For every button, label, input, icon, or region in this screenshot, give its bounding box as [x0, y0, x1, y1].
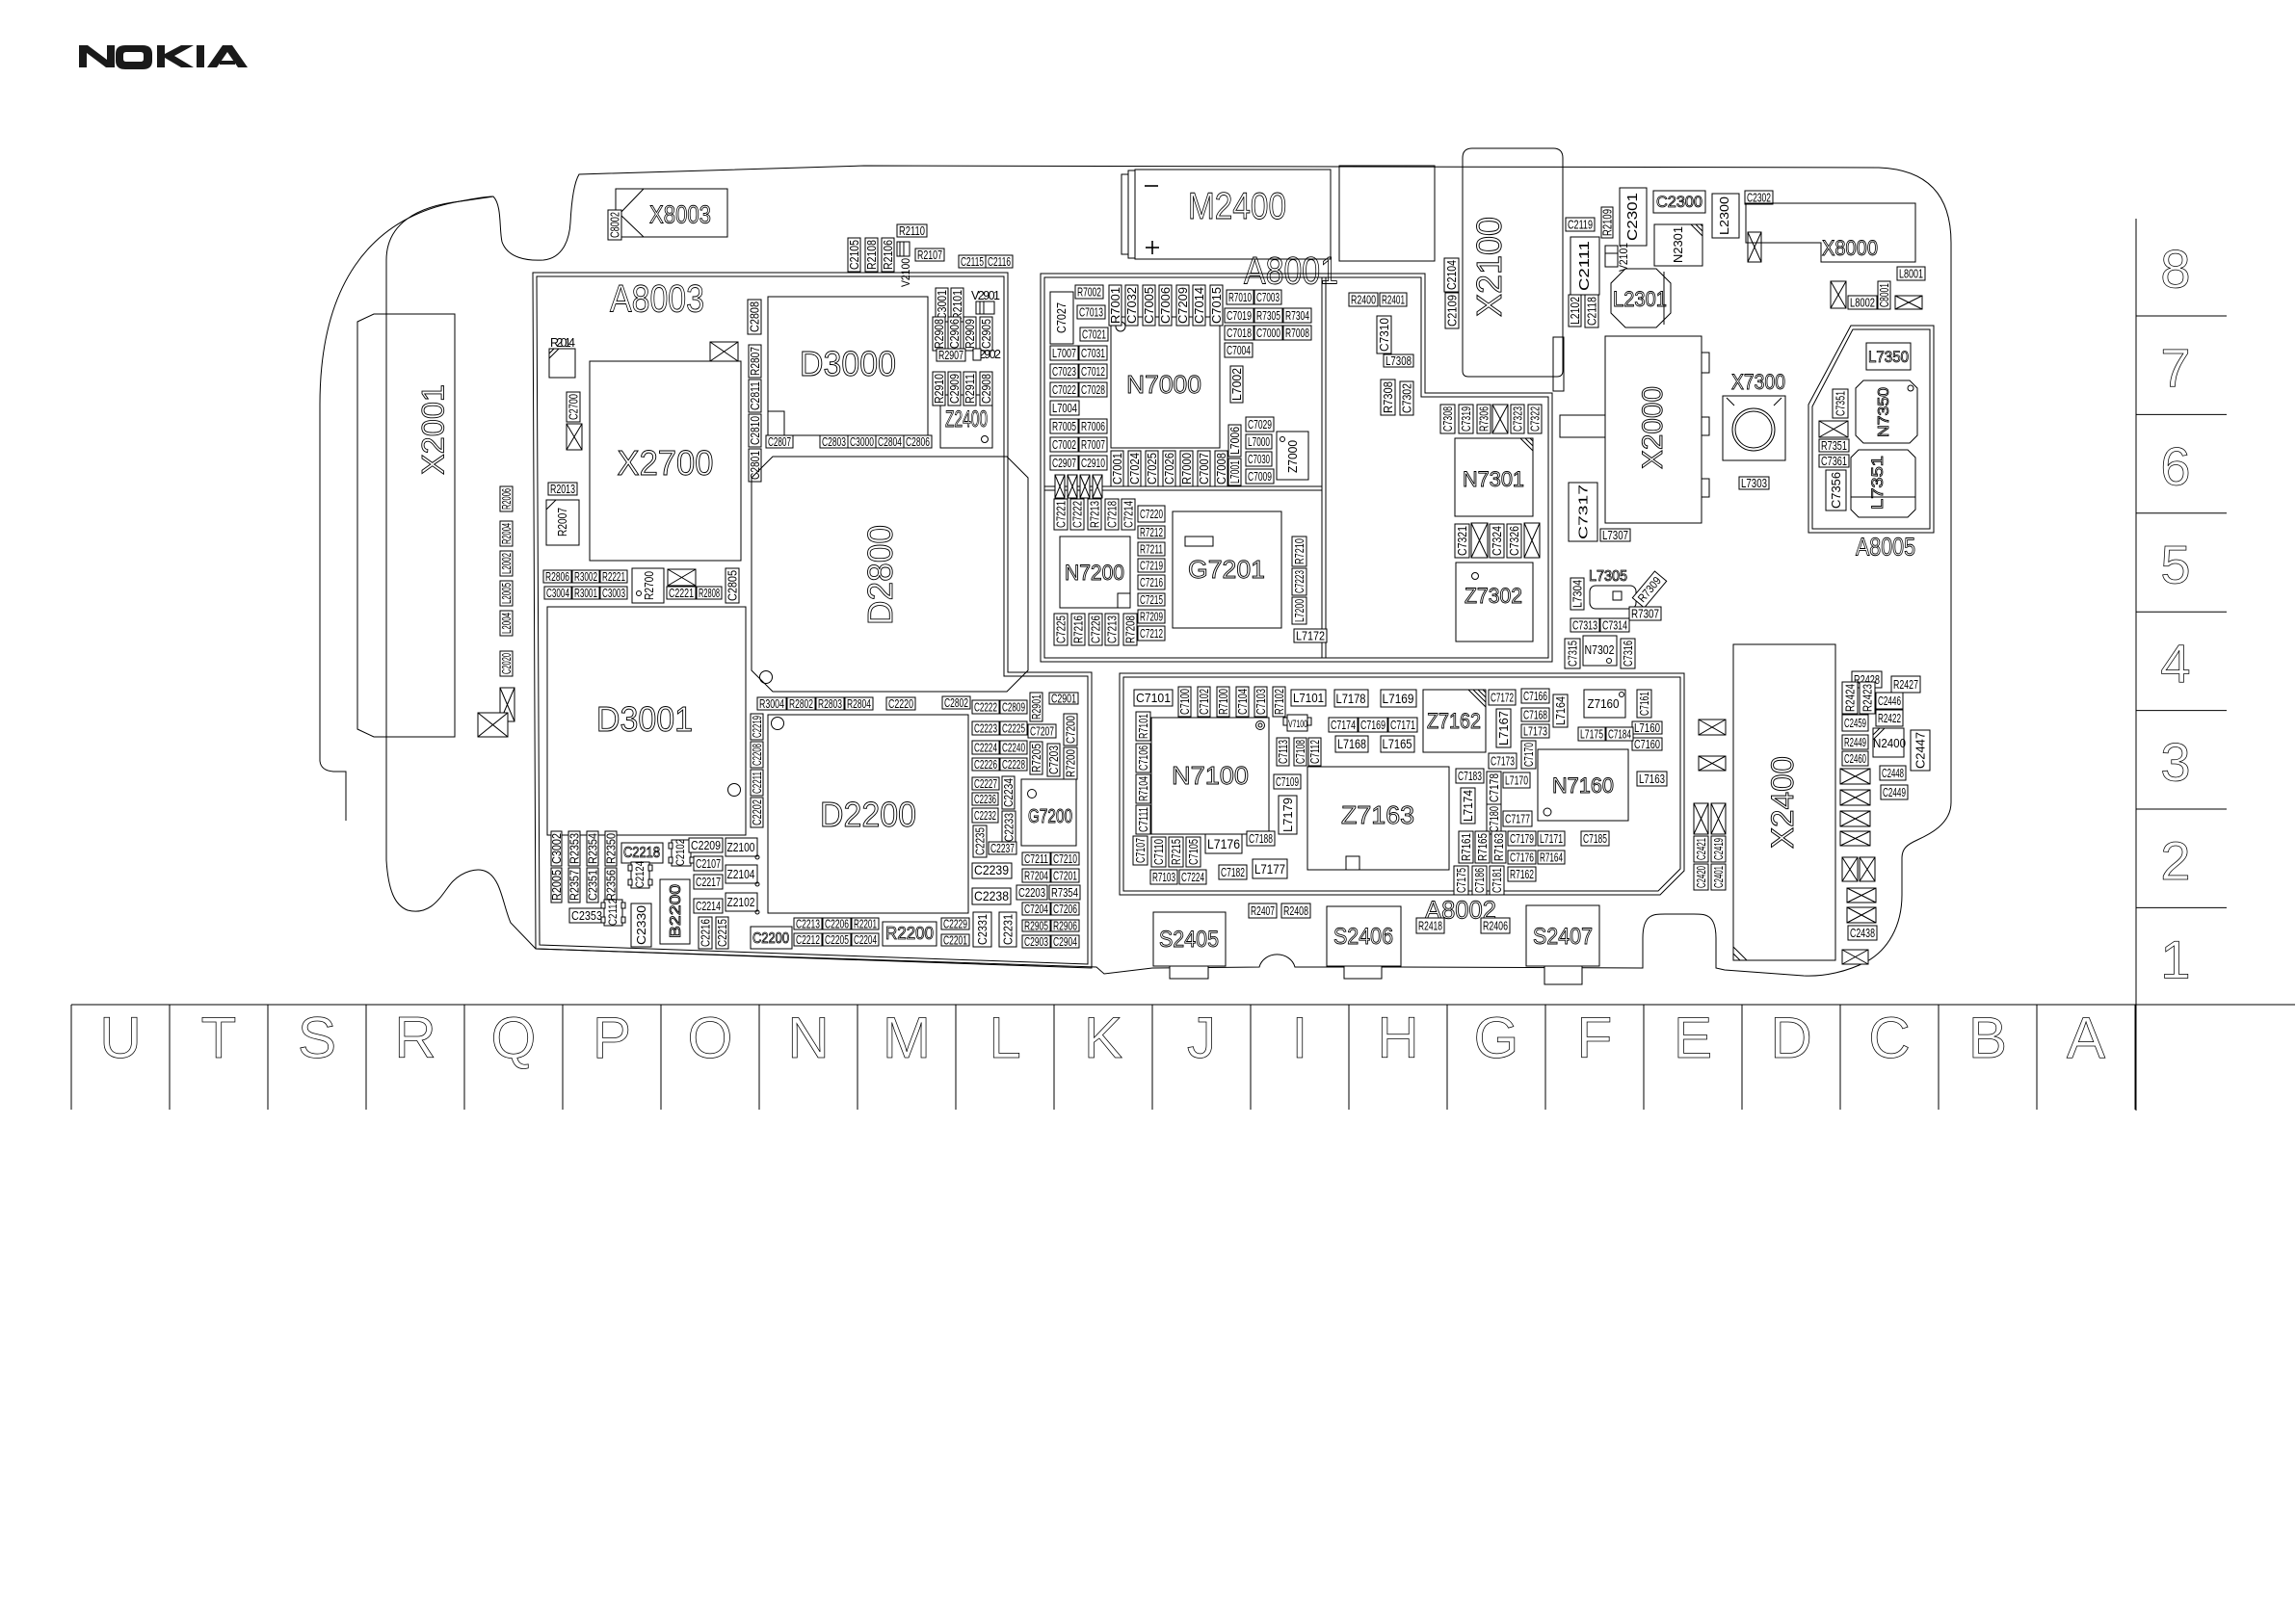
svg-text:L2002: L2002 — [500, 553, 514, 574]
svg-text:N2400: N2400 — [1873, 736, 1906, 750]
svg-text:C7166: C7166 — [1523, 690, 1547, 703]
svg-text:R2014: R2014 — [550, 336, 575, 350]
svg-text:C7314: C7314 — [1602, 618, 1627, 632]
svg-text:R7007: R7007 — [1081, 438, 1105, 452]
svg-text:S2405: S2405 — [1159, 927, 1219, 953]
svg-text:B: B — [1968, 1006, 2007, 1070]
svg-text:L7160: L7160 — [1634, 721, 1660, 735]
svg-text:C2111: C2111 — [1576, 241, 1593, 291]
svg-text:R7164: R7164 — [1540, 851, 1563, 864]
svg-text:C7002: C7002 — [1052, 438, 1076, 452]
svg-text:C2232: C2232 — [974, 809, 996, 823]
svg-text:R3001: R3001 — [574, 587, 597, 600]
svg-text:R7008: R7008 — [1285, 327, 1309, 340]
svg-text:C7215: C7215 — [1140, 593, 1163, 607]
svg-text:R7208: R7208 — [1123, 615, 1137, 643]
svg-text:C7213: C7213 — [1105, 615, 1119, 643]
svg-text:C2109: C2109 — [1445, 295, 1459, 327]
svg-text:C7302: C7302 — [1400, 383, 1413, 413]
svg-text:L7165: L7165 — [1383, 736, 1412, 751]
svg-text:S2407: S2407 — [1533, 924, 1593, 950]
svg-text:C2420: C2420 — [1695, 866, 1708, 888]
svg-text:R2005: R2005 — [550, 870, 564, 901]
svg-text:C7009: C7009 — [1248, 470, 1272, 484]
svg-text:L7172: L7172 — [1296, 629, 1325, 642]
svg-text:C2238: C2238 — [974, 888, 1009, 903]
svg-text:L7178: L7178 — [1336, 691, 1366, 706]
svg-text:C7022: C7022 — [1052, 383, 1076, 397]
svg-text:7: 7 — [2160, 337, 2190, 398]
svg-text:Z7162: Z7162 — [1427, 709, 1481, 733]
svg-text:I: I — [1292, 1006, 1308, 1070]
svg-text:Z7163: Z7163 — [1341, 800, 1414, 829]
svg-text:C2803: C2803 — [822, 435, 846, 449]
svg-text:L7307: L7307 — [1602, 529, 1628, 542]
svg-text:X2001: X2001 — [416, 384, 451, 475]
svg-text:R2357: R2357 — [567, 870, 581, 901]
svg-text:R7215: R7215 — [1170, 839, 1183, 865]
svg-text:R7165: R7165 — [1476, 833, 1490, 861]
svg-text:D2800: D2800 — [860, 525, 900, 625]
svg-text:C2801: C2801 — [749, 451, 762, 480]
svg-text:R2911: R2911 — [963, 374, 977, 404]
svg-text:Z2100: Z2100 — [727, 840, 755, 854]
svg-text:N7000: N7000 — [1126, 370, 1201, 399]
svg-text:C7161: C7161 — [1638, 692, 1651, 716]
svg-text:C2212: C2212 — [796, 933, 820, 947]
svg-text:R2200: R2200 — [885, 924, 934, 943]
svg-text:P: P — [593, 1006, 631, 1070]
svg-text:R7307: R7307 — [1631, 607, 1659, 620]
svg-text:L7101: L7101 — [1293, 691, 1324, 705]
svg-text:R7005: R7005 — [1052, 420, 1076, 433]
svg-text:C7026: C7026 — [1163, 453, 1176, 484]
svg-text:V2101: V2101 — [1619, 243, 1630, 272]
svg-text:C7101: C7101 — [1136, 691, 1171, 705]
svg-text:C7014: C7014 — [1193, 287, 1206, 324]
svg-text:X8000: X8000 — [1822, 236, 1878, 260]
svg-text:C2227: C2227 — [974, 777, 997, 791]
svg-text:C2237: C2237 — [990, 842, 1015, 855]
svg-text:C2104: C2104 — [1445, 260, 1459, 290]
svg-text:C3004: C3004 — [546, 587, 569, 600]
svg-text:R7161: R7161 — [1460, 833, 1473, 861]
svg-text:E: E — [1674, 1006, 1712, 1070]
svg-text:N: N — [787, 1006, 829, 1070]
svg-text:C2419: C2419 — [1712, 838, 1726, 860]
svg-text:L7002: L7002 — [1230, 368, 1244, 401]
svg-text:R7204: R7204 — [1024, 869, 1048, 882]
svg-text:C7219: C7219 — [1140, 559, 1163, 572]
svg-text:C7203: C7203 — [1047, 746, 1061, 774]
svg-text:C2228: C2228 — [1002, 758, 1025, 772]
svg-text:C2119: C2119 — [1568, 218, 1593, 231]
svg-text:A8001: A8001 — [1244, 249, 1338, 292]
svg-text:G: G — [1474, 1006, 1519, 1070]
svg-text:L7001: L7001 — [1228, 460, 1242, 484]
svg-text:O: O — [688, 1006, 733, 1070]
svg-text:C7106: C7106 — [1137, 746, 1150, 771]
svg-text:C7172: C7172 — [1491, 691, 1514, 704]
svg-text:M: M — [883, 1006, 931, 1070]
svg-text:L8001: L8001 — [1899, 267, 1923, 280]
svg-text:R2418: R2418 — [1418, 919, 1442, 932]
svg-text:C2239: C2239 — [974, 862, 1009, 877]
svg-text:C2211: C2211 — [751, 772, 764, 794]
svg-text:C2231: C2231 — [1000, 914, 1015, 945]
svg-text:L2102: L2102 — [1569, 297, 1582, 325]
svg-text:L7303: L7303 — [1741, 477, 1767, 490]
svg-text:R2108: R2108 — [865, 240, 879, 270]
svg-text:L7007: L7007 — [1052, 347, 1076, 360]
svg-text:R7010: R7010 — [1228, 291, 1252, 304]
svg-text:L7177: L7177 — [1254, 861, 1285, 877]
svg-text:2: 2 — [2160, 830, 2190, 891]
svg-text:C2353: C2353 — [571, 908, 602, 923]
svg-text:C7184: C7184 — [1608, 727, 1631, 741]
svg-text:R2802: R2802 — [789, 697, 813, 711]
svg-text:R7006: R7006 — [1081, 420, 1105, 433]
svg-text:R2013: R2013 — [550, 483, 575, 496]
svg-text:R7308: R7308 — [1382, 381, 1395, 413]
svg-text:L2301: L2301 — [1613, 287, 1667, 311]
svg-text:5: 5 — [2160, 535, 2190, 595]
svg-text:C7176: C7176 — [1510, 851, 1534, 864]
svg-text:R: R — [394, 1006, 435, 1070]
svg-text:C7168: C7168 — [1523, 708, 1547, 721]
svg-text:C7109: C7109 — [1276, 775, 1299, 789]
svg-text:C2811: C2811 — [749, 381, 762, 410]
svg-text:R2004: R2004 — [500, 523, 514, 544]
svg-text:R2909: R2909 — [963, 319, 977, 349]
svg-text:C2203: C2203 — [1018, 886, 1045, 900]
svg-text:C7181: C7181 — [1491, 868, 1504, 893]
svg-text:C7210: C7210 — [1053, 852, 1077, 866]
svg-text:R2422: R2422 — [1878, 712, 1901, 725]
svg-text:R2908: R2908 — [933, 319, 946, 349]
svg-text:R7354: R7354 — [1051, 886, 1078, 900]
svg-text:C7019: C7019 — [1227, 309, 1252, 323]
svg-text:C7030: C7030 — [1248, 453, 1270, 466]
svg-text:Z2400: Z2400 — [945, 406, 988, 432]
svg-text:R2101: R2101 — [951, 290, 964, 320]
svg-text:C7003: C7003 — [1256, 291, 1280, 304]
svg-text:L7200: L7200 — [1293, 599, 1306, 622]
svg-text:R2110: R2110 — [899, 224, 925, 238]
svg-text:R2907: R2907 — [938, 349, 963, 362]
svg-text:L7163: L7163 — [1639, 772, 1665, 786]
svg-text:C7112: C7112 — [1308, 740, 1322, 764]
svg-text:C7322: C7322 — [1528, 406, 1542, 432]
svg-text:J: J — [1187, 1006, 1216, 1070]
svg-text:C2222: C2222 — [974, 700, 997, 714]
svg-text:R2700: R2700 — [643, 571, 656, 600]
svg-text:C7100: C7100 — [1178, 689, 1192, 715]
svg-text:C2234: C2234 — [1002, 778, 1016, 807]
svg-text:C2302: C2302 — [1747, 191, 1771, 204]
svg-text:B2200: B2200 — [668, 884, 684, 938]
svg-text:C7214: C7214 — [1122, 501, 1135, 528]
svg-text:C2221: C2221 — [669, 587, 694, 600]
svg-text:C2438: C2438 — [1850, 927, 1875, 940]
svg-text:R2408: R2408 — [1283, 904, 1308, 918]
svg-text:R2201: R2201 — [854, 917, 877, 930]
svg-text:R7216: R7216 — [1071, 615, 1085, 643]
svg-text:C2809: C2809 — [1002, 700, 1025, 714]
svg-text:C2235: C2235 — [973, 827, 987, 855]
svg-text:C7006: C7006 — [1159, 287, 1173, 324]
svg-text:C2200: C2200 — [752, 930, 789, 947]
svg-text:C7220: C7220 — [1140, 508, 1163, 521]
svg-text:R2806: R2806 — [545, 570, 569, 584]
svg-text:R7162: R7162 — [1510, 868, 1534, 881]
svg-text:C2214: C2214 — [696, 899, 721, 913]
svg-text:L7164: L7164 — [1554, 696, 1568, 725]
svg-text:C2907: C2907 — [1052, 457, 1076, 470]
svg-text:D2200: D2200 — [820, 795, 916, 834]
svg-text:C7107: C7107 — [1134, 838, 1148, 863]
svg-text:R7213: R7213 — [1088, 501, 1101, 528]
svg-text:C7324: C7324 — [1491, 526, 1504, 556]
svg-text:C7201: C7201 — [1053, 869, 1077, 882]
svg-text:C2446: C2446 — [1878, 694, 1901, 708]
svg-text:C7028: C7028 — [1081, 383, 1105, 397]
svg-text:C2226: C2226 — [974, 758, 997, 772]
svg-text:R2407: R2407 — [1251, 904, 1275, 918]
svg-text:S2406: S2406 — [1333, 924, 1393, 950]
svg-text:R2007: R2007 — [556, 508, 569, 537]
svg-text:C3001: C3001 — [936, 290, 949, 320]
svg-text:X2700: X2700 — [618, 443, 714, 483]
svg-text:R2356: R2356 — [604, 870, 618, 901]
svg-text:C7013: C7013 — [1079, 305, 1103, 319]
svg-text:L7351: L7351 — [1868, 456, 1887, 510]
svg-text:C7316: C7316 — [1622, 641, 1635, 667]
svg-text:C2448: C2448 — [1882, 767, 1904, 780]
svg-text:C2224: C2224 — [974, 741, 997, 754]
svg-text:C7206: C7206 — [1053, 903, 1077, 916]
svg-text:C2460: C2460 — [1844, 752, 1866, 766]
svg-text:C2219: C2219 — [751, 716, 764, 738]
svg-text:L2005: L2005 — [500, 583, 514, 604]
svg-text:C7204: C7204 — [1024, 903, 1048, 916]
svg-text:C7326: C7326 — [1508, 526, 1521, 556]
svg-text:L2004: L2004 — [500, 613, 514, 634]
svg-text:R2109: R2109 — [1600, 209, 1614, 236]
svg-text:C7216: C7216 — [1140, 576, 1163, 589]
svg-text:U: U — [99, 1006, 141, 1070]
svg-text:C2904: C2904 — [1053, 935, 1077, 949]
svg-text:R3002: R3002 — [574, 570, 597, 584]
svg-text:C2124: C2124 — [635, 861, 647, 888]
svg-text:C7113: C7113 — [1277, 740, 1290, 764]
svg-text:C7021: C7021 — [1082, 327, 1106, 341]
svg-text:L7176: L7176 — [1207, 836, 1240, 851]
svg-text:C7173: C7173 — [1491, 754, 1515, 768]
svg-text:C2459: C2459 — [1844, 717, 1866, 730]
svg-text:N7100: N7100 — [1172, 761, 1249, 790]
svg-text:R2807: R2807 — [749, 347, 762, 376]
svg-text:C2910: C2910 — [1081, 457, 1105, 470]
svg-text:C7170: C7170 — [1522, 743, 1536, 767]
svg-text:C7174: C7174 — [1331, 719, 1356, 732]
svg-text:C2240: C2240 — [1002, 741, 1025, 754]
svg-text:C2118: C2118 — [1585, 297, 1598, 326]
svg-text:C2700: C2700 — [567, 394, 580, 420]
svg-text:R2808: R2808 — [699, 587, 720, 600]
svg-text:C7186: C7186 — [1473, 868, 1487, 893]
svg-text:C7108: C7108 — [1294, 740, 1307, 764]
svg-text:C2205: C2205 — [825, 933, 849, 947]
svg-text:R2910: R2910 — [933, 374, 946, 404]
svg-text:C7005: C7005 — [1143, 287, 1156, 324]
svg-text:L7171: L7171 — [1540, 832, 1563, 846]
svg-text:R2006: R2006 — [500, 488, 514, 510]
svg-text:R7304: R7304 — [1285, 309, 1309, 323]
svg-text:C2805: C2805 — [726, 570, 739, 601]
svg-text:C2102: C2102 — [675, 839, 687, 866]
svg-text:R2350: R2350 — [604, 833, 618, 864]
svg-text:C2220: C2220 — [888, 697, 913, 711]
svg-text:L7174: L7174 — [1462, 790, 1475, 822]
svg-text:N7350: N7350 — [1876, 387, 1892, 437]
svg-text:C7171: C7171 — [1390, 719, 1415, 732]
svg-text:C7025: C7025 — [1146, 453, 1159, 484]
svg-text:C7032: C7032 — [1125, 287, 1139, 324]
svg-text:H: H — [1377, 1006, 1418, 1070]
svg-text:C7182: C7182 — [1221, 866, 1245, 879]
svg-text:C2236: C2236 — [974, 793, 996, 806]
svg-text:C7104: C7104 — [1236, 689, 1250, 715]
svg-text:C7110: C7110 — [1152, 839, 1166, 865]
svg-text:C2204: C2204 — [854, 933, 877, 947]
svg-text:C: C — [1868, 1006, 1910, 1070]
svg-text:C7323: C7323 — [1511, 406, 1524, 432]
svg-text:C2107: C2107 — [696, 856, 721, 871]
svg-text:M2400: M2400 — [1188, 186, 1286, 227]
svg-text:R2221: R2221 — [602, 570, 625, 584]
svg-text:G7200: G7200 — [1028, 806, 1072, 827]
svg-text:R2423: R2423 — [1861, 684, 1874, 712]
svg-text:C2112: C2112 — [608, 899, 620, 926]
svg-text:C7177: C7177 — [1505, 812, 1530, 825]
svg-text:R7212: R7212 — [1140, 526, 1163, 539]
svg-text:X2400: X2400 — [1765, 756, 1800, 849]
svg-text:C2905: C2905 — [980, 319, 993, 349]
svg-text:C2806: C2806 — [906, 435, 930, 449]
svg-text:L7000: L7000 — [1248, 435, 1270, 449]
svg-text:X8003: X8003 — [649, 199, 711, 228]
svg-text:X2100: X2100 — [1469, 217, 1509, 317]
svg-text:C7000: C7000 — [1256, 327, 1280, 340]
svg-text:C7209: C7209 — [1176, 287, 1190, 324]
svg-text:L8002: L8002 — [1850, 296, 1875, 309]
svg-text:C7356: C7356 — [1829, 472, 1843, 509]
svg-text:R2803: R2803 — [818, 697, 842, 711]
svg-text:R2406: R2406 — [1483, 919, 1508, 932]
svg-text:C7007: C7007 — [1198, 453, 1211, 484]
svg-text:C8001: C8001 — [1878, 283, 1891, 307]
svg-text:A8005: A8005 — [1856, 532, 1915, 561]
svg-text:C7178: C7178 — [1488, 773, 1501, 802]
svg-text:C7023: C7023 — [1052, 365, 1076, 379]
svg-text:C2218: C2218 — [623, 845, 660, 861]
svg-text:C7179: C7179 — [1510, 832, 1534, 846]
svg-text:C7175: C7175 — [1455, 868, 1468, 893]
svg-text:C2401: C2401 — [1712, 866, 1726, 888]
svg-text:C2351: C2351 — [586, 870, 599, 901]
svg-text:C2301: C2301 — [1624, 193, 1641, 241]
svg-text:R7205: R7205 — [1030, 744, 1043, 772]
svg-text:1: 1 — [2160, 929, 2190, 989]
svg-text:R7100: R7100 — [1217, 689, 1230, 715]
svg-text:C2225: C2225 — [1002, 721, 1025, 735]
svg-text:R7211: R7211 — [1140, 542, 1163, 556]
svg-text:C2216: C2216 — [699, 919, 712, 947]
svg-text:C7223: C7223 — [1293, 570, 1306, 593]
svg-text:C2807: C2807 — [768, 435, 791, 449]
svg-text:C7313: C7313 — [1572, 618, 1597, 632]
svg-text:A: A — [2067, 1006, 2105, 1070]
svg-text:C7224: C7224 — [1181, 871, 1204, 884]
svg-text:C2202: C2202 — [751, 799, 764, 825]
svg-text:C2909: C2909 — [948, 374, 962, 404]
svg-text:R7103: R7103 — [1152, 871, 1175, 884]
svg-text:C7103: C7103 — [1254, 689, 1268, 715]
svg-text:C7319: C7319 — [1460, 406, 1473, 432]
svg-text:C2331: C2331 — [975, 914, 990, 945]
svg-text:R3004: R3004 — [759, 697, 784, 711]
svg-text:L7170: L7170 — [1505, 773, 1528, 787]
svg-text:L7304: L7304 — [1570, 580, 1584, 608]
svg-text:D3001: D3001 — [596, 699, 693, 739]
svg-text:C7317: C7317 — [1575, 484, 1590, 539]
svg-text:8: 8 — [2160, 239, 2190, 300]
svg-text:R2906: R2906 — [1053, 919, 1077, 932]
svg-text:C2449: C2449 — [1883, 786, 1906, 799]
svg-text:C2906: C2906 — [948, 319, 962, 349]
svg-text:L7179: L7179 — [1280, 798, 1295, 832]
svg-text:C7004: C7004 — [1227, 344, 1251, 357]
svg-text:R2901: R2901 — [1030, 694, 1043, 720]
svg-text:S: S — [298, 1006, 336, 1070]
svg-text:C7180: C7180 — [1488, 806, 1501, 832]
svg-text:K: K — [1084, 1006, 1122, 1070]
svg-text:C7185: C7185 — [1583, 832, 1607, 846]
svg-text:Z2104: Z2104 — [727, 867, 755, 881]
svg-text:R2424: R2424 — [1843, 684, 1857, 712]
svg-text:C2116: C2116 — [988, 255, 1011, 269]
svg-text:C7226: C7226 — [1089, 615, 1102, 643]
svg-text:C7222: C7222 — [1070, 501, 1084, 528]
svg-text:R2106: R2106 — [882, 240, 895, 270]
svg-text:C2229: C2229 — [943, 917, 967, 930]
svg-text:R7210: R7210 — [1293, 538, 1306, 564]
svg-text:R2427: R2427 — [1893, 678, 1918, 692]
svg-text:R7104: R7104 — [1137, 776, 1150, 801]
svg-text:C2804: C2804 — [878, 435, 902, 449]
svg-text:C7102: C7102 — [1198, 689, 1211, 715]
svg-text:C2233: C2233 — [1002, 813, 1016, 842]
svg-text:L7167: L7167 — [1497, 711, 1511, 746]
svg-text:C7160: C7160 — [1634, 738, 1660, 751]
svg-text:L: L — [989, 1006, 1020, 1070]
svg-text:C7183: C7183 — [1458, 770, 1482, 783]
svg-text:C2802: C2802 — [944, 696, 968, 710]
svg-text:R7000: R7000 — [1180, 453, 1194, 484]
svg-text:N7160: N7160 — [1552, 773, 1614, 798]
svg-text:C2421: C2421 — [1695, 838, 1708, 860]
